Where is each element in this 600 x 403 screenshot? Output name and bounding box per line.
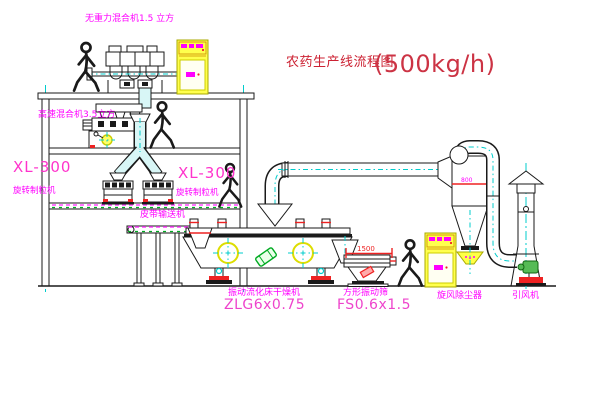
label-rooftop-mixer: 无重力混合机1.5 立方 [85, 12, 174, 24]
cad-flow-diagram: 1500 800 [0, 0, 600, 403]
label-granulator-right-model: XL-300 [178, 164, 236, 182]
label-belt-conveyor: 皮带输送机 [140, 208, 185, 220]
flow-diagram-canvas: 1500 800 [0, 0, 600, 403]
label-granulator-right-name: 旋转制粒机 [176, 187, 219, 198]
label-cyclone: 旋风除尘器 [437, 289, 482, 301]
dim-1500-text: 1500 [357, 245, 375, 253]
label-fan: 引风机 [512, 289, 539, 301]
diagram-capacity: (500kg/h) [374, 50, 495, 78]
label-high-speed-mixer: 高速混合机3.5立方 [38, 108, 115, 120]
label-dryer-model: ZLG6x0.75 [224, 297, 305, 313]
control-cabinet-roof [177, 40, 208, 94]
dim-800-text: 800 [461, 177, 473, 184]
label-granulator-left-name: 旋转制粒机 [13, 185, 56, 196]
label-granulator-left-model: XL-300 [13, 158, 71, 176]
control-cabinet-floor [425, 233, 456, 287]
label-screen-model: FS0.6x1.5 [337, 297, 411, 313]
